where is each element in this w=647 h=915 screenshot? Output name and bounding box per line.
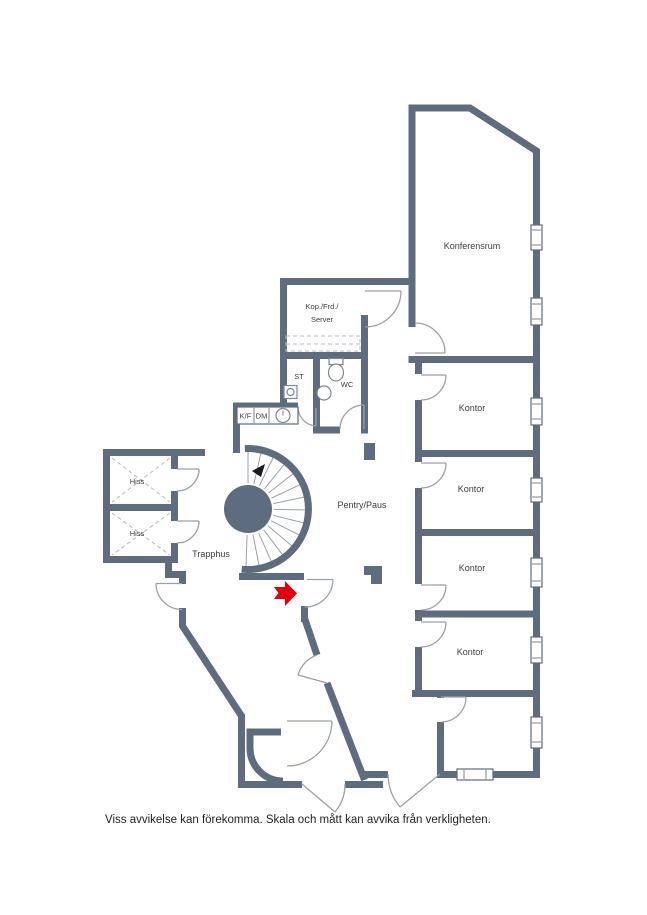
room-label-hiss: Hiss xyxy=(130,529,145,538)
window xyxy=(531,637,542,663)
room-label-kontor: Kontor xyxy=(457,647,484,657)
exterior-walls xyxy=(104,108,537,785)
door-arc xyxy=(388,774,440,807)
toilet-icon xyxy=(329,359,344,382)
window xyxy=(531,398,542,425)
window xyxy=(531,558,542,587)
interior-walls xyxy=(110,315,540,781)
room-label-wc: WC xyxy=(341,380,354,389)
fixtures xyxy=(112,336,382,606)
window xyxy=(531,225,542,250)
room-label-kop-frd-server: Kop./Frd./ xyxy=(306,302,340,311)
room-label-hiss: Hiss xyxy=(130,477,145,486)
window xyxy=(457,769,493,780)
door-arc xyxy=(177,469,199,491)
door-arc xyxy=(302,784,345,812)
floor-plan: Konferensrum Kontor Kontor Kontor Kontor… xyxy=(0,0,647,915)
room-label-kop-frd-server: Server xyxy=(311,315,334,324)
room-label-konferensrum: Konferensrum xyxy=(444,241,501,251)
pillar xyxy=(364,566,382,584)
door-arc xyxy=(365,291,401,327)
room-label-kontor: Kontor xyxy=(459,403,486,413)
door-arc xyxy=(287,721,332,766)
room-label-kontor: Kontor xyxy=(459,563,486,573)
room-label-st: ST xyxy=(294,372,304,381)
sink-icon xyxy=(284,386,297,399)
entrance-arrow-icon xyxy=(274,581,297,606)
door-arc xyxy=(340,405,364,429)
door-arc xyxy=(298,655,327,683)
stairs-direction-arrow-icon xyxy=(252,464,265,477)
room-label-pentry-paus: Pentry/Paus xyxy=(337,500,387,510)
door-arc xyxy=(415,323,445,353)
disclaimer-text: Viss avvikelse kan förekomma. Skala och … xyxy=(105,814,565,826)
door-arc xyxy=(305,580,334,608)
floor-plan-page: Konferensrum Kontor Kontor Kontor Kontor… xyxy=(0,0,647,915)
spiral-staircase xyxy=(224,449,308,570)
window xyxy=(531,717,542,748)
door-arc xyxy=(421,463,446,488)
staircase-core xyxy=(224,485,272,533)
door-arc xyxy=(177,521,199,543)
sink-icon xyxy=(317,386,331,400)
pillar xyxy=(364,443,375,460)
label-dm: DM xyxy=(256,412,268,421)
window xyxy=(531,478,542,502)
window xyxy=(531,298,542,325)
door-arc xyxy=(441,697,466,722)
label-kf: K/F xyxy=(240,412,252,421)
room-label-kontor: Kontor xyxy=(458,484,485,494)
door-arc xyxy=(421,375,446,400)
door-arc xyxy=(421,622,446,647)
door-arc xyxy=(421,585,446,610)
room-label-trapphus: Trapphus xyxy=(192,549,230,559)
door-arc xyxy=(156,584,183,610)
